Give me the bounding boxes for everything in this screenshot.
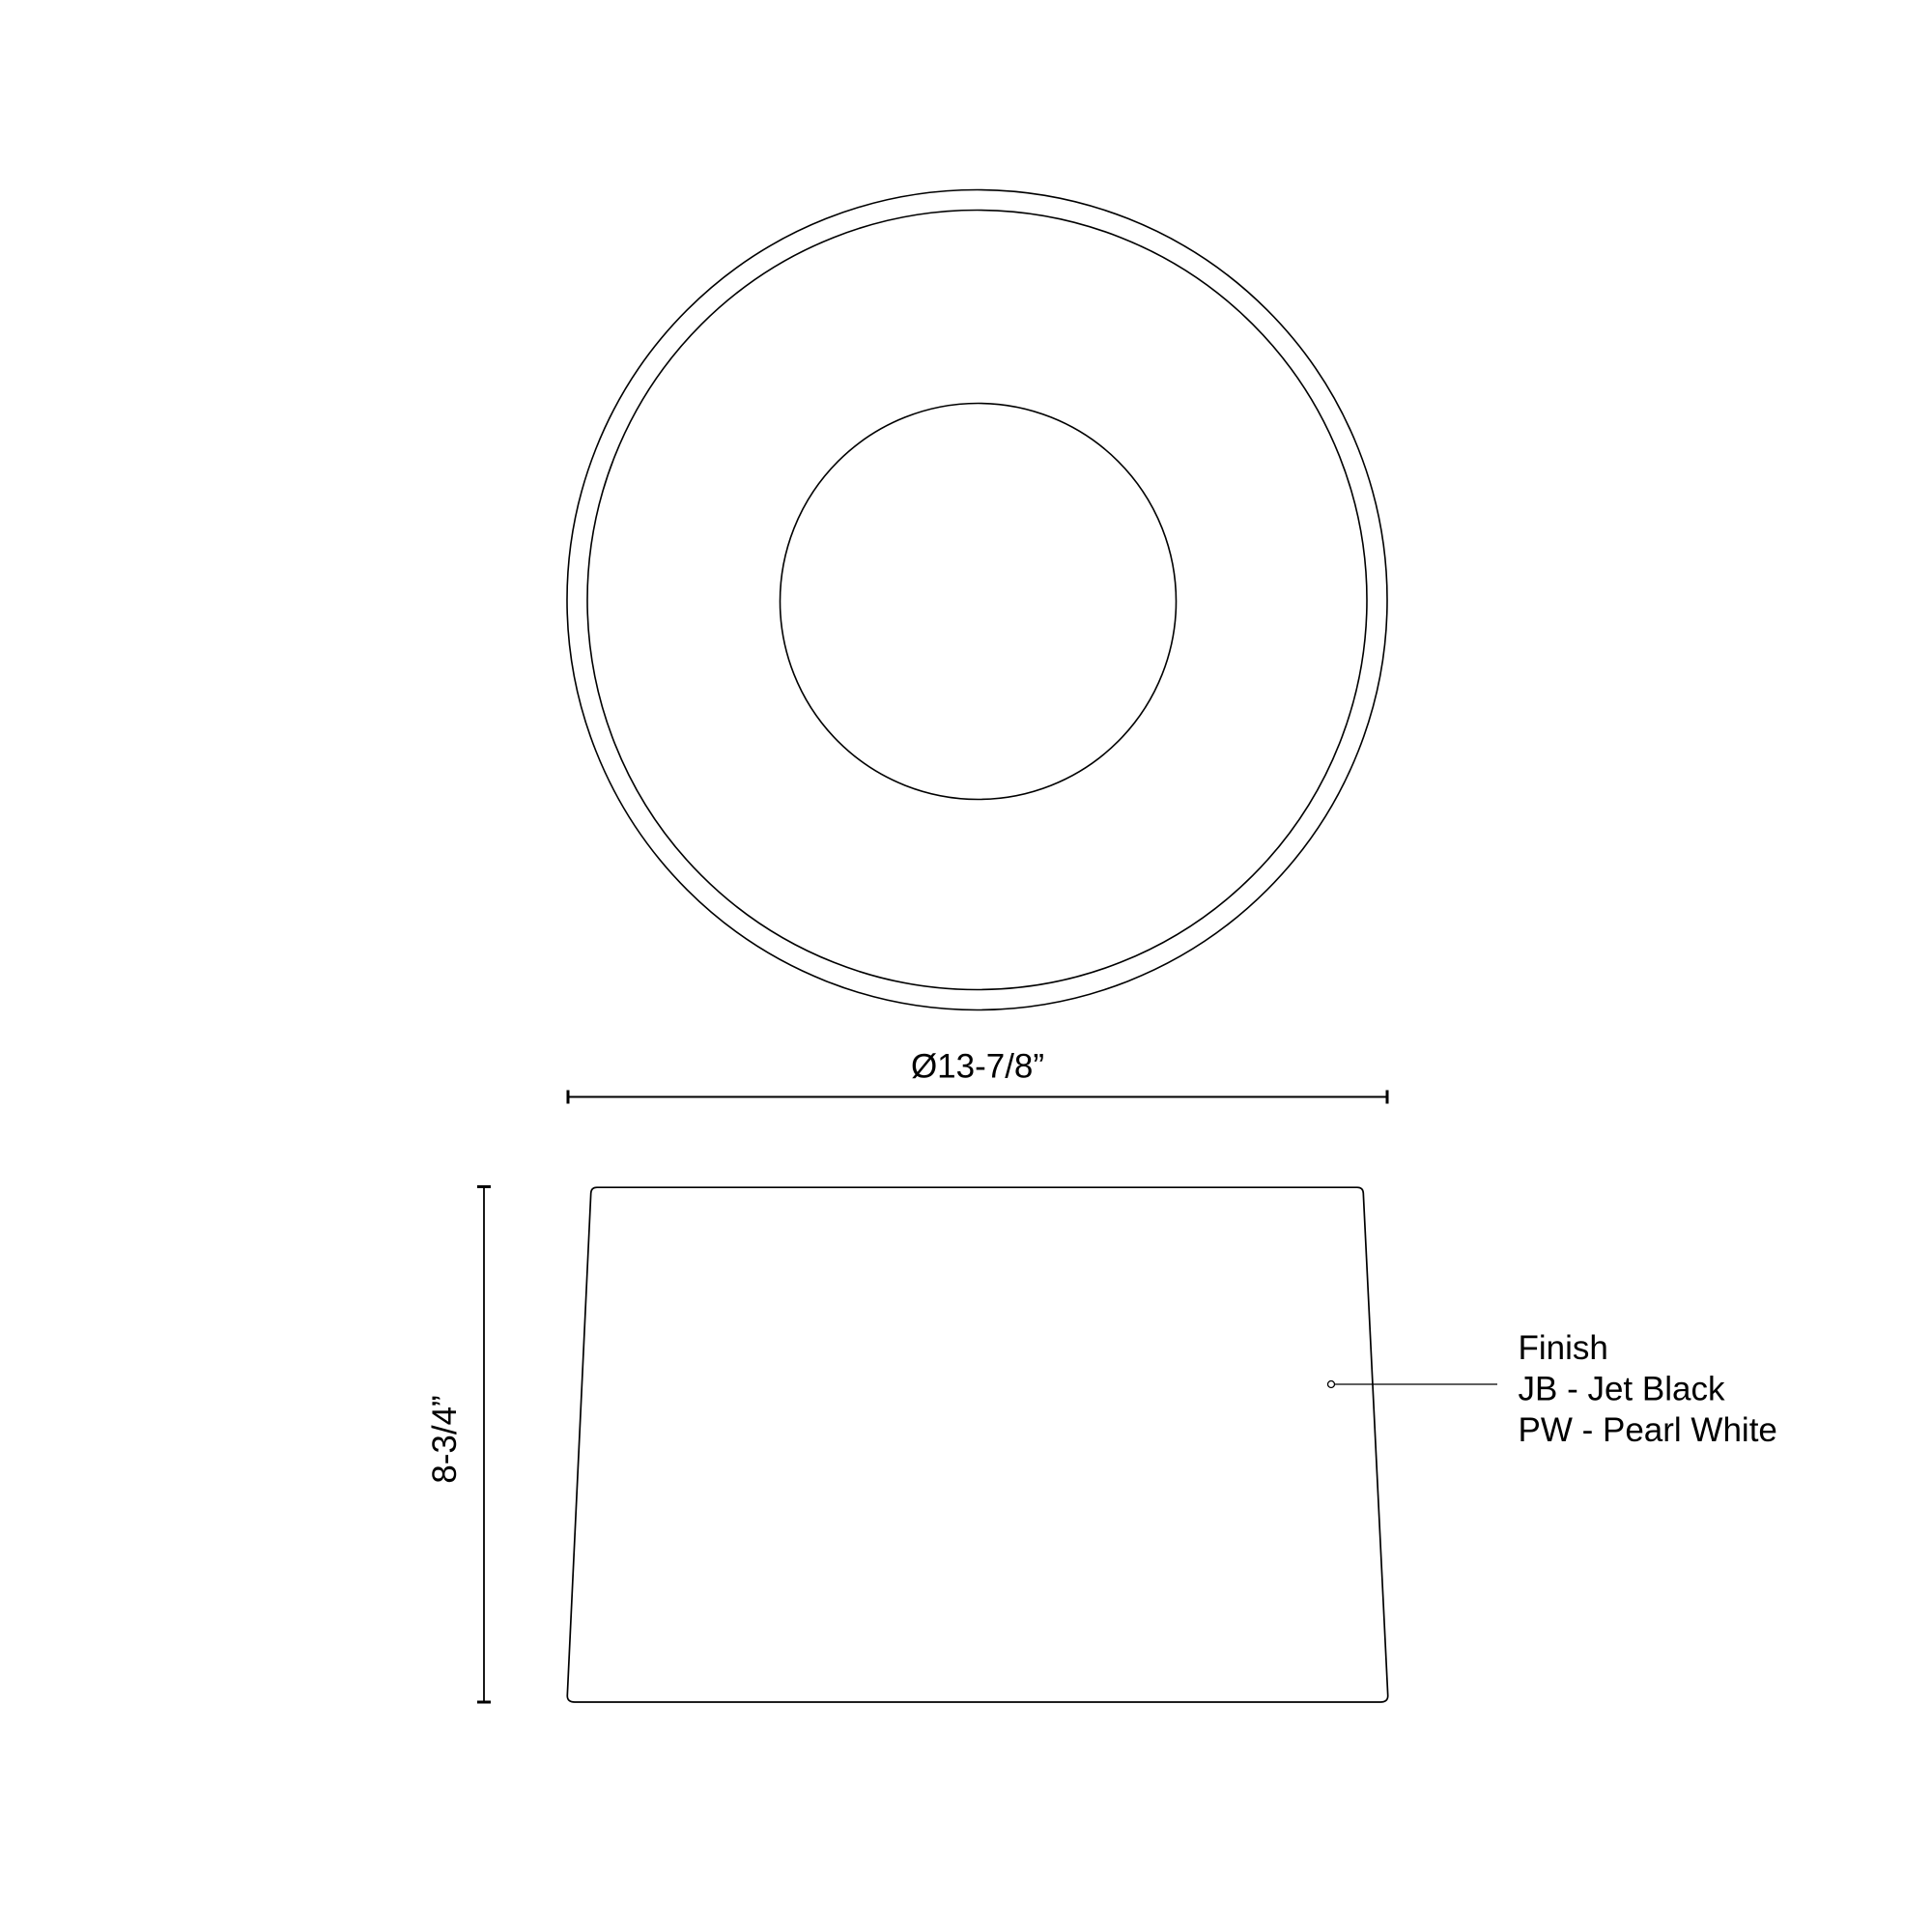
svg-text:Finish: Finish [1519,1329,1608,1367]
svg-text:JB - Jet Black: JB - Jet Black [1519,1371,1725,1408]
svg-text:8-3/4”: 8-3/4” [426,1395,464,1483]
svg-text:PW - Pearl White: PW - Pearl White [1519,1411,1777,1449]
svg-text:Ø13-7/8”: Ø13-7/8” [911,1048,1044,1086]
